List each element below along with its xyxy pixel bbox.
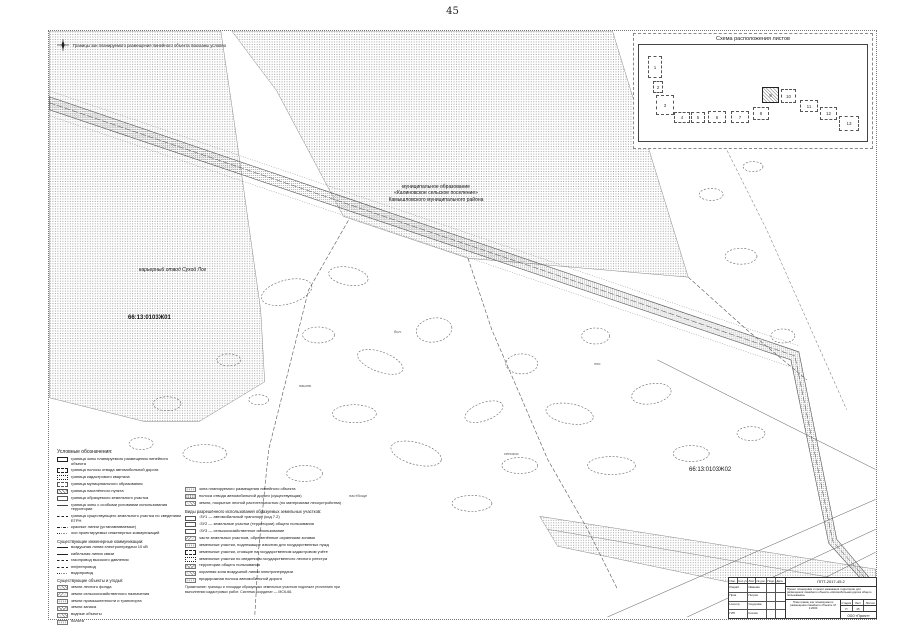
legend-row: граница населённого пункта (57, 489, 183, 494)
map-label: муниципальное образование «Калиновское с… (341, 184, 531, 203)
date-cell (776, 593, 785, 601)
legend-label: зона планируемого размещения линейного о… (199, 487, 351, 492)
boundary-line (727, 151, 847, 410)
legend-row: :ЗУ1 — автомобильный транспорт (код 7.2) (185, 515, 351, 520)
legend-row: граница зоны планируемого размещения лин… (57, 457, 183, 467)
legend-row: земельные участки по сведениям государст… (185, 557, 351, 562)
inset-sheet-box: 5 (691, 112, 705, 123)
legend-label: водные объекты (71, 612, 183, 617)
title-block-main: ППТ-2017-45.2 Проект планировки и проект… (786, 578, 876, 618)
title-block-bottom: План границ зон планируемого размещения … (786, 600, 876, 618)
legend-swatch-icon (57, 560, 68, 561)
legend-title: Условные обозначения: (57, 449, 183, 455)
legend-label: охранная зона воздушной линии электропер… (199, 570, 351, 575)
legend-swatch-icon (57, 457, 68, 462)
legend-row: зона планируемого размещения линейного о… (185, 487, 351, 492)
legend-swatch-icon (57, 554, 68, 555)
legend-swatch-icon (57, 475, 68, 480)
legend-label: территории общего пользования (199, 563, 351, 568)
title-block-row: Пров. Петров (729, 593, 785, 602)
legend-row: кабельная линия связи (57, 552, 183, 557)
name-cell: Петров (748, 593, 767, 601)
legend-swatch-icon (57, 489, 68, 494)
legend-swatch-icon (57, 516, 68, 517)
role-cell: ГИП (729, 610, 748, 618)
signature-cell (767, 593, 776, 601)
legend-row: водные объекты (57, 612, 183, 617)
legend-row: земли промышленности и транспорта (57, 599, 183, 604)
map-label: 66:13:0103Ж01 (128, 315, 171, 323)
legend-row: нефтепровод (57, 565, 183, 570)
legend-swatch-icon (185, 501, 196, 506)
legend-row: части земельных участков, обременённые о… (185, 536, 351, 541)
signature-cell (767, 602, 776, 610)
document-code: ППТ-2017-45.2 (786, 578, 876, 587)
map-label: бол. (394, 329, 402, 334)
legend-row: :ЗУ2 — земельные участки (территории) об… (185, 522, 351, 527)
legend-swatch-icon (185, 557, 196, 562)
north-note: Границы зон планируемого размещения лине… (57, 39, 297, 51)
name-cell: Козлов (748, 610, 767, 618)
legend-label: граница существующего земельного участка… (71, 514, 183, 524)
map-label: карьерный отвод Сухой Лог (139, 267, 259, 273)
sheets-label: Листов (864, 600, 876, 605)
legend-swatch-icon (185, 522, 196, 527)
map-label: лес (594, 361, 601, 366)
legend-label: земли запаса (71, 605, 183, 610)
legend-swatch-icon (57, 527, 68, 528)
legend-swatch-icon (57, 613, 68, 618)
title-block-row: ГИП Козлов (729, 610, 785, 618)
title-block-col-label: Кол.уч. (738, 578, 748, 583)
title-block-col-label: Дата (776, 578, 785, 583)
date-cell (776, 610, 785, 618)
legend-swatch-icon (185, 516, 196, 521)
legend-row: граница существующего земельного участка… (57, 514, 183, 524)
inset-sheet-box: 9 (762, 87, 779, 103)
legend-swatch-icon (57, 573, 68, 574)
map-label: пастбище (349, 493, 367, 498)
title-block-col-label: Изм. (729, 578, 738, 583)
legend-label: :ЗУ2 — земельные участки (территории) об… (199, 522, 351, 527)
legend-label: земельные участки, стоящие на государств… (199, 550, 351, 555)
inset-sheet-box: 4 (674, 112, 690, 123)
legend-swatch-icon (57, 606, 68, 611)
legend-row: оси проектируемых инженерных коммуникаци… (57, 531, 183, 536)
legend-swatch-icon (57, 592, 68, 597)
legend-row: воздушная линия электропередачи 10 кВ (57, 545, 183, 550)
drawing-page: 45 (0, 0, 905, 640)
company-name: ООО «Проект» (841, 612, 876, 618)
legend-label: земли сельскохозяйственного назначения (71, 592, 183, 597)
sheet-layout-inset: Схема расположения листов 12345678910111… (633, 33, 873, 149)
legend-swatch-icon (57, 533, 68, 534)
legend-label: :ЗУ1 — автомобильный транспорт (код 7.2) (199, 515, 351, 520)
title-block-signatures: Изм.Кол.уч.Лист№ док.Подп.Дата Разраб. И… (729, 578, 786, 618)
legend-column-2: зона планируемого размещения линейного о… (185, 487, 351, 594)
legend-label: придорожная полоса автомобильной дороги (199, 577, 351, 582)
legend-label: нефтепровод (71, 565, 183, 570)
legend-label: граница зоны с особыми условиями использ… (71, 503, 183, 513)
map-label: 66:13:0103Ж02 (689, 467, 731, 475)
legend-row: болота (57, 619, 183, 624)
name-cell: Сидорова (748, 602, 767, 610)
legend-swatch-icon (185, 543, 196, 548)
legend-label: части земельных участков, обременённые о… (199, 536, 351, 541)
legend-label: земельные участки, подлежащие изъятию дл… (199, 543, 351, 548)
map-sheet-frame: Границы зон планируемого размещения лине… (48, 30, 877, 620)
legend-row: полоса отвода автомобильной дороги (суще… (185, 494, 351, 499)
legend-row: красные линии (устанавливаемые) (57, 525, 183, 530)
legend-note: Примечание: границы и площади образуемых… (185, 585, 351, 594)
legend-row: земли, покрытые лесной растительностью (… (185, 501, 351, 506)
inset-sheet-box: 10 (781, 89, 796, 103)
stage-label: Стадия (841, 600, 853, 605)
legend-row: земли лесного фонда (57, 585, 183, 590)
legend-row: территории общего пользования (185, 563, 351, 568)
legend-swatch-icon (185, 487, 196, 492)
legend-label: граница населённого пункта (71, 489, 183, 494)
legend-swatch-icon (57, 599, 68, 604)
legend-row: граница кадастрового квартала (57, 475, 183, 480)
stage-value: П (841, 606, 853, 611)
title-block-row: Н.контр. Сидорова (729, 602, 785, 611)
inset-sheet-box: 7 (731, 111, 749, 123)
signature-cell (767, 584, 776, 592)
legend-label: граница зоны планируемого размещения лин… (71, 457, 183, 467)
legend-swatch-icon (185, 564, 196, 569)
signature-cell (767, 610, 776, 618)
legend-label: земли лесного фонда (71, 585, 183, 590)
legend-label: земли, покрытые лесной растительностью (… (199, 501, 351, 506)
legend-swatch-icon (185, 550, 196, 555)
legend-row: Существующие инженерные коммуникации: (57, 539, 183, 544)
legend-label: полоса отвода автомобильной дороги (суще… (199, 494, 351, 499)
legend-swatch-icon (57, 547, 68, 548)
inset-sheet-box: 6 (708, 111, 726, 123)
role-cell: Н.контр. (729, 602, 748, 610)
legend-list-1: граница зоны планируемого размещения лин… (57, 457, 183, 625)
title-block-col-label: Лист (748, 578, 756, 583)
inset-title: Схема расположения листов (638, 36, 868, 42)
role-cell: Разраб. (729, 584, 748, 592)
legend-row: граница зоны с особыми условиями использ… (57, 503, 183, 513)
legend-swatch-icon (185, 536, 196, 541)
sheet-value: 45 (853, 606, 865, 611)
legend-swatch-icon (57, 567, 68, 568)
legend-row: земли запаса (57, 605, 183, 610)
inset-sheet-box: 3 (656, 95, 674, 115)
sheet-label: Лист (853, 600, 865, 605)
hatched-area-left (49, 31, 264, 422)
sheets-value (864, 606, 876, 611)
legend-label: газопровод высокого давления (71, 558, 183, 563)
title-block-row: Разраб. Иванова (729, 584, 785, 593)
map-label: сенокос (504, 451, 519, 456)
legend-label: граница кадастрового квартала (71, 475, 183, 480)
legend-row: граница образуемого земельного участка (57, 496, 183, 501)
legend-label: водопровод (71, 571, 183, 576)
north-arrow-icon (57, 39, 69, 51)
legend-label: Существующие объекты и угодья: (57, 578, 183, 583)
inset-sheet-box: 1 (648, 56, 662, 78)
legend-label: граница полосы отвода автомобильной доро… (71, 468, 183, 473)
north-note-text: Границы зон планируемого размещения лине… (73, 43, 226, 48)
date-cell (776, 602, 785, 610)
survey-line (657, 360, 875, 470)
legend-swatch-icon (57, 496, 68, 501)
legend-row: земельные участки, подлежащие изъятию дл… (185, 543, 351, 548)
legend-row: газопровод высокого давления (57, 558, 183, 563)
legend-label: земельные участки по сведениям государст… (199, 557, 351, 562)
inset-sheet-box: 2 (653, 81, 663, 93)
legend-swatch-icon (185, 494, 196, 499)
inset-body: 12345678910111213 (638, 44, 868, 142)
legend-swatch-icon (185, 571, 196, 576)
title-block-rows: Разраб. Иванова Пров. Петров Н.контр. Си… (729, 584, 785, 618)
legend-row: Виды разрешённого использования образуем… (185, 509, 351, 514)
legend-swatch-icon (185, 578, 196, 583)
legend-label: Существующие инженерные коммуникации: (57, 539, 183, 544)
legend-label: :ЗУ3 — сельскохозяйственное использовани… (199, 529, 351, 534)
legend-label: граница муниципального образования (71, 482, 183, 487)
legend-label: земли промышленности и транспорта (71, 599, 183, 604)
role-cell: Пров. (729, 593, 748, 601)
legend-list-2: зона планируемого размещения линейного о… (185, 487, 351, 583)
legend-row: охранная зона воздушной линии электропер… (185, 570, 351, 575)
legend-swatch-icon (57, 468, 68, 473)
legend-row: :ЗУ3 — сельскохозяйственное использовани… (185, 529, 351, 534)
legend-swatch-icon (185, 529, 196, 534)
legend-label: болота (71, 619, 183, 624)
legend-swatch-icon (57, 620, 68, 625)
legend-label: оси проектируемых инженерных коммуникаци… (71, 531, 183, 536)
title-block: Изм.Кол.уч.Лист№ док.Подп.Дата Разраб. И… (728, 577, 877, 619)
legend-swatch-icon (57, 482, 68, 487)
inset-sheet-box: 13 (839, 116, 859, 131)
page-number: 45 (0, 6, 905, 17)
legend-row: земли сельскохозяйственного назначения (57, 592, 183, 597)
legend-column-1: Условные обозначения: граница зоны плани… (57, 449, 183, 626)
inset-sheet-box: 12 (820, 107, 837, 120)
title-block-stage-company: Стадия Лист Листов П 45 ООО «Проект» (841, 600, 876, 618)
legend-row: Существующие объекты и угодья: (57, 578, 183, 583)
project-description: Проект планировки и проект межевания тер… (786, 587, 876, 600)
name-cell: Иванова (748, 584, 767, 592)
title-block-col-label: Подп. (767, 578, 776, 583)
legend-swatch-icon (57, 505, 68, 506)
legend-row: земельные участки, стоящие на государств… (185, 550, 351, 555)
date-cell (776, 584, 785, 592)
legend-label: граница образуемого земельного участка (71, 496, 183, 501)
legend-row: граница полосы отвода автомобильной доро… (57, 468, 183, 473)
legend-label: воздушная линия электропередачи 10 кВ (71, 545, 183, 550)
map-label: пашня (299, 383, 311, 388)
legend-row: придорожная полоса автомобильной дороги (185, 577, 351, 582)
legend-swatch-icon (57, 585, 68, 590)
sheet-title: План границ зон планируемого размещения … (786, 600, 841, 618)
legend-row: водопровод (57, 571, 183, 576)
inset-sheet-box: 8 (753, 107, 769, 120)
legend-label: кабельная линия связи (71, 552, 183, 557)
inset-sheet-box: 11 (800, 100, 818, 112)
legend-row: граница муниципального образования (57, 482, 183, 487)
legend-label: красные линии (устанавливаемые) (71, 525, 183, 530)
title-block-col-label: № док. (756, 578, 767, 583)
legend-label: Виды разрешённого использования образуем… (185, 509, 351, 514)
